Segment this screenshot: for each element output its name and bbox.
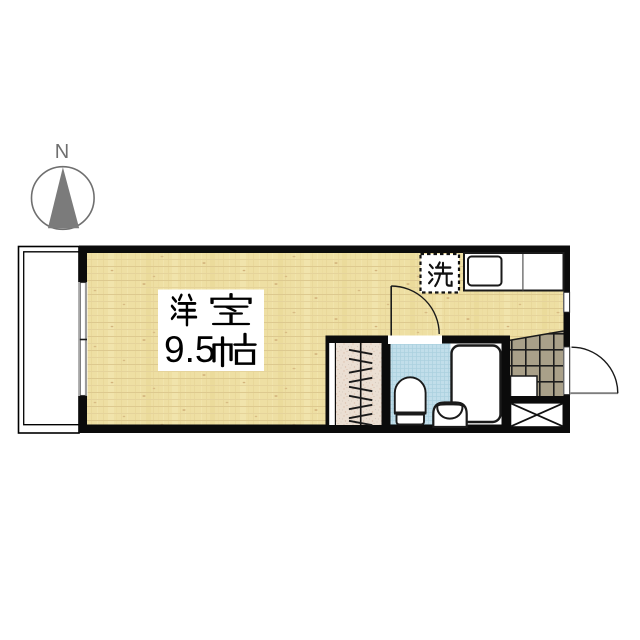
svg-text:N: N (55, 141, 69, 163)
svg-text:9.5: 9.5 (164, 329, 215, 370)
